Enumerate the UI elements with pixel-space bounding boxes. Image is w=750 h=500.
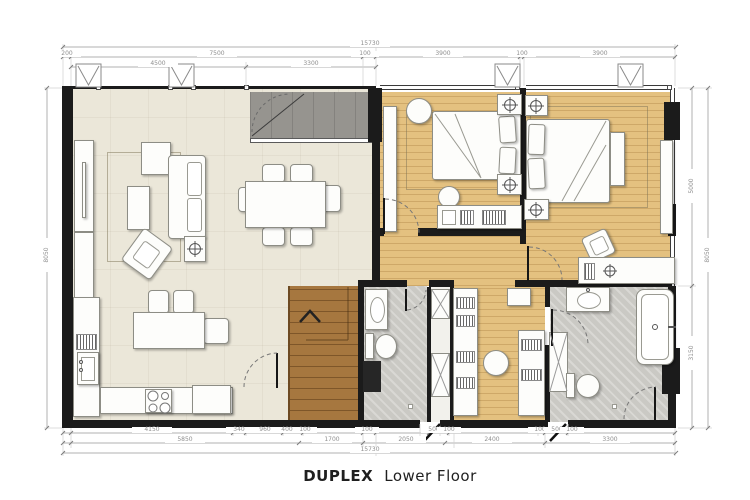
desk-chair-seat <box>589 235 610 256</box>
cabinet-bedroom1 <box>383 106 397 232</box>
dim-right-overall: 8050 <box>705 238 711 272</box>
hanger-rail <box>456 377 475 389</box>
door-leaf-bathroom2-rear <box>654 387 656 420</box>
dresser-drawer <box>442 210 456 225</box>
basin-bathroom1 <box>370 297 385 323</box>
sofa-living <box>168 155 206 239</box>
dim-top: 200 <box>53 51 81 57</box>
shaft-box-top <box>431 289 450 319</box>
sofa-cushion <box>187 162 202 196</box>
stair-void-area <box>250 92 376 138</box>
floor-drain <box>408 404 413 409</box>
staircase-floor <box>288 286 360 422</box>
dim-top: 100 <box>351 51 379 57</box>
dim-bottom: 100 <box>437 427 461 433</box>
kitchen-unit <box>192 385 231 414</box>
plan-title: DUPLEXLower Floor <box>235 467 545 485</box>
tall-cabinet-left <box>74 232 94 298</box>
island-table <box>133 312 205 349</box>
wall-col-right1 <box>664 102 680 140</box>
dim-top-overall: 15730 <box>350 41 390 47</box>
island-chair <box>173 290 194 314</box>
nightstand-bed1-bottom <box>497 174 522 195</box>
window-column-marks <box>76 64 643 87</box>
bed1-pillow <box>498 147 516 175</box>
bathtub-inner <box>641 294 669 360</box>
toilet2-bowl <box>576 374 600 398</box>
dim-bottom: 3300 <box>590 437 630 443</box>
wall-left <box>62 86 73 428</box>
hanger-rail <box>456 315 475 327</box>
wall-bottom-c <box>568 420 676 428</box>
hanger-rail <box>521 369 542 381</box>
dim-top: 4500 <box>138 61 178 67</box>
wall-mid-a <box>358 280 407 287</box>
toilet1-bowl <box>375 334 397 359</box>
mullion-5 <box>515 85 520 90</box>
bed1-pillow <box>498 115 517 143</box>
round-table-bedroom1 <box>406 98 432 124</box>
wall-top-glassline <box>62 86 376 89</box>
plan-title-sub: Lower Floor <box>384 467 477 485</box>
nightstand-bed2-top <box>525 95 548 116</box>
hanger-rail <box>456 351 475 363</box>
coffee-table-living <box>127 186 150 230</box>
dark-cabinet-bathroom1 <box>363 361 381 392</box>
mullion-6 <box>667 85 672 90</box>
mullion-2 <box>168 85 173 90</box>
lamp-table-living <box>184 236 206 262</box>
void-railing <box>250 138 376 143</box>
dim-bottom: 4150 <box>132 427 172 433</box>
dim-top: 3900 <box>580 51 620 57</box>
dim-bottom: 5850 <box>165 437 205 443</box>
dim-bottom: 100 <box>560 427 584 433</box>
dim-bottom: 100 <box>293 427 317 433</box>
desk-bedroom2 <box>578 257 675 284</box>
wall-walkin-bath2-upper <box>545 287 550 307</box>
hanger-rail <box>456 297 475 309</box>
dining-chair <box>262 227 285 246</box>
dim-bottom: 100 <box>355 427 379 433</box>
sofa-cushion <box>187 198 202 232</box>
dim-top: 3300 <box>291 61 331 67</box>
toilet2-tank <box>566 373 575 398</box>
dim-bottom: 2050 <box>386 437 426 443</box>
dresser-hangers <box>460 210 474 225</box>
wardrobe-right <box>518 330 545 416</box>
floorplan-canvas: 15730 200 7500 100 3900 100 3900 4500 33… <box>0 0 750 500</box>
mullion-4 <box>244 85 249 90</box>
bed2-pillow <box>527 124 545 156</box>
stove <box>145 389 172 413</box>
wall-bedroom1-bottom <box>418 228 524 236</box>
dim-bottom: 340 <box>226 427 252 433</box>
dim-bottom: 2400 <box>472 437 512 443</box>
vanity-bathroom1 <box>365 289 388 330</box>
dim-right: 3150 <box>689 336 695 370</box>
dresser-hangers <box>482 210 506 225</box>
vanity-bathroom2 <box>566 287 610 312</box>
tv-panel-living <box>82 162 86 218</box>
island-chair <box>148 290 169 314</box>
dim-bottom: 1700 <box>312 437 352 443</box>
mullion-1 <box>96 85 101 90</box>
bed2-pillow <box>527 158 546 190</box>
dim-right: 5000 <box>689 169 695 203</box>
wall-living-bedroom1 <box>372 88 380 286</box>
nightstand-bed2-bottom <box>524 199 549 220</box>
basin-bathroom2 <box>577 292 601 309</box>
dim-top: 7500 <box>197 51 237 57</box>
kitchen-sink <box>77 352 99 385</box>
window-bedroom2-top <box>526 85 672 90</box>
mullion-3 <box>191 85 196 90</box>
sink-basin <box>81 357 95 381</box>
desk-item <box>584 263 595 280</box>
bathtub <box>636 289 674 365</box>
door-leaf-bedroom1 <box>383 198 385 234</box>
door-leaf-bathroom2 <box>551 309 553 346</box>
island-chair <box>203 318 229 344</box>
window-bedroom1-top <box>380 85 520 90</box>
tv-console-bedroom2 <box>660 140 673 234</box>
dim-bottom-overall: 15730 <box>350 447 390 453</box>
toilet1-tank <box>365 333 374 359</box>
wardrobe-left <box>453 288 478 416</box>
dim-left-overall: 8050 <box>44 238 50 272</box>
drawer-box-walkin <box>507 288 531 306</box>
stool-walkin <box>483 350 509 376</box>
plan-title-main: DUPLEX <box>303 467 373 485</box>
door-leaf-bedroom2 <box>527 246 529 281</box>
dining-chair <box>290 227 313 246</box>
wall-stairs-bath1 <box>358 287 364 422</box>
side-table-living <box>141 142 171 175</box>
door-leaf-hall <box>276 353 278 388</box>
door-leaf-bathroom1 <box>405 289 407 311</box>
nightstand-bed1-top <box>497 94 522 115</box>
dining-table <box>245 181 326 228</box>
wall-mid-b <box>429 280 454 287</box>
kitchen-vent <box>76 334 97 350</box>
armchair-seat <box>132 240 161 270</box>
shaft-box-bottom <box>431 353 450 397</box>
hanger-rail <box>521 339 542 351</box>
dresser-bedroom1 <box>437 205 522 229</box>
dim-top: 3900 <box>423 51 463 57</box>
floor-drain <box>612 404 617 409</box>
bench-bedroom2 <box>610 132 625 186</box>
dim-top: 100 <box>508 51 536 57</box>
